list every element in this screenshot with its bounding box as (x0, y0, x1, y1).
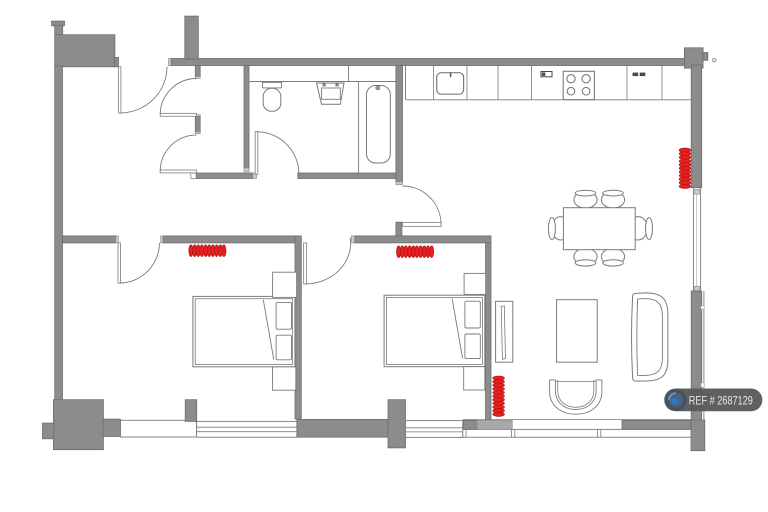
svg-text:REF # 2687129: REF # 2687129 (689, 394, 753, 408)
